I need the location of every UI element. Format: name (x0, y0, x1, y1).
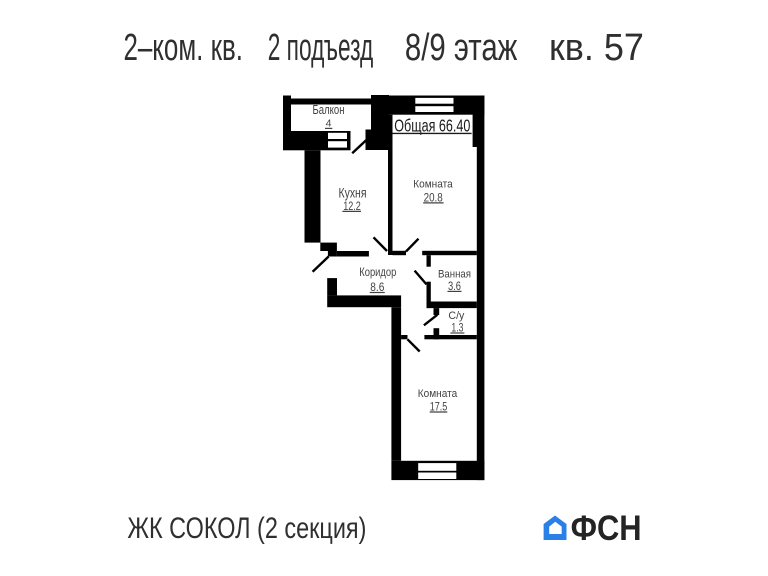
svg-text:ЖК СОКОЛ (2 секция): ЖК СОКОЛ (2 секция) (127, 512, 366, 545)
svg-text:ФСН: ФСН (571, 508, 642, 548)
svg-text:20.8: 20.8 (424, 190, 443, 204)
svg-text:кв. 57: кв. 57 (549, 27, 644, 69)
svg-text:2 подъезд: 2 подъезд (268, 27, 374, 69)
svg-text:Комната: Комната (418, 388, 458, 400)
svg-text:8/9 этаж: 8/9 этаж (405, 27, 518, 69)
svg-text:4: 4 (326, 118, 332, 130)
svg-text:Комната: Комната (413, 179, 453, 191)
svg-text:Коридор: Коридор (359, 265, 396, 279)
svg-text:2–ком. кв.: 2–ком. кв. (123, 27, 243, 69)
svg-text:8.6: 8.6 (370, 280, 384, 294)
svg-text:Балкон: Балкон (313, 103, 345, 117)
